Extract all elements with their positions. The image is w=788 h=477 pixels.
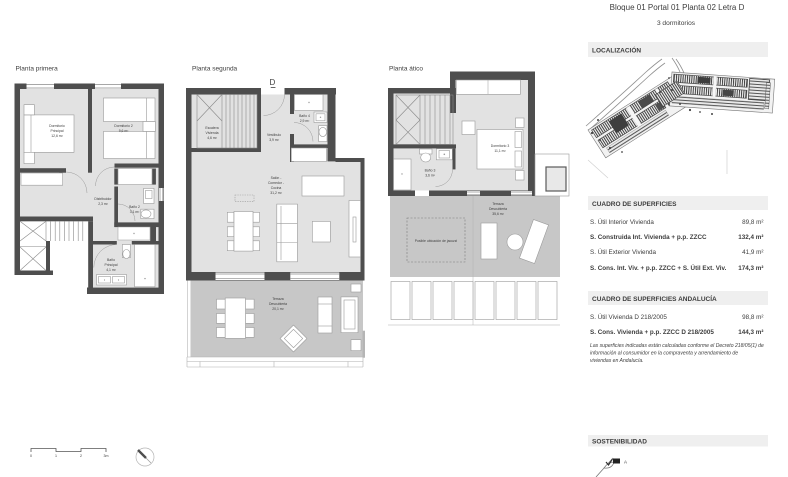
svg-text:20,1 m²: 20,1 m² [272, 307, 284, 311]
svg-text:4,6 m²: 4,6 m² [207, 136, 217, 140]
svg-text:35,6 m²: 35,6 m² [492, 212, 504, 216]
svg-text:2: 2 [80, 454, 82, 458]
svg-text:S. Útil Vivienda D 218/2005: S. Útil Vivienda D 218/2005 [590, 312, 667, 321]
svg-text:Principal: Principal [104, 263, 117, 267]
svg-text:Planta segunda: Planta segunda [192, 66, 238, 73]
svg-text:información al consumidor en l: información al consumidor en la comprave… [590, 351, 738, 357]
svg-text:A: A [624, 460, 627, 465]
svg-text:viviendas en Andalucía.: viviendas en Andalucía. [590, 358, 644, 364]
svg-text:Vestíbulo: Vestíbulo [267, 133, 281, 137]
svg-text:11,1 m²: 11,1 m² [494, 149, 506, 153]
svg-text:89,8 m²: 89,8 m² [742, 219, 763, 226]
svg-text:Dormitorio 3: Dormitorio 3 [491, 144, 510, 148]
svg-text:3,9 m²: 3,9 m² [269, 138, 279, 142]
svg-text:CUADRO DE SUPERFICIES: CUADRO DE SUPERFICIES [592, 201, 677, 208]
svg-text:Baño: Baño [107, 258, 115, 262]
svg-text:Posible ubicación de jacuzzi: Posible ubicación de jacuzzi [415, 239, 458, 243]
svg-text:Salón -: Salón - [271, 176, 282, 180]
svg-text:1: 1 [55, 454, 57, 458]
svg-text:Comedor -: Comedor - [268, 181, 284, 185]
svg-text:3m: 3m [104, 454, 109, 458]
svg-text:LOCALIZACIÓN: LOCALIZACIÓN [592, 46, 641, 55]
svg-text:Vivienda: Vivienda [206, 131, 219, 135]
svg-text:D: D [270, 78, 276, 87]
svg-text:Planta ático: Planta ático [389, 66, 423, 73]
svg-text:Terraza: Terraza [492, 202, 503, 206]
svg-text:132,4 m²: 132,4 m² [738, 234, 763, 241]
svg-text:2,3 m²: 2,3 m² [98, 202, 108, 206]
svg-text:Escalera: Escalera [205, 126, 218, 130]
svg-text:S. Cons. Vivienda + p.p. ZZCC: S. Cons. Vivienda + p.p. ZZCC D 218/2005 [590, 329, 714, 336]
svg-text:Dormitorio 2: Dormitorio 2 [114, 124, 133, 128]
svg-text:3,6 m²: 3,6 m² [425, 174, 435, 178]
svg-text:Dormitorio: Dormitorio [49, 124, 65, 128]
svg-text:2,9 m²: 2,9 m² [300, 119, 310, 123]
svg-text:41,9 m²: 41,9 m² [742, 249, 763, 256]
svg-text:Bloque 01 Portal 01 Planta 02: Bloque 01 Portal 01 Planta 02 Letra D [610, 3, 745, 12]
svg-text:9,6 m²: 9,6 m² [119, 129, 129, 133]
svg-text:Planta primera: Planta primera [16, 66, 59, 73]
svg-text:Baño 4: Baño 4 [299, 114, 310, 118]
svg-text:S. Útil Exterior Vivienda: S. Útil Exterior Vivienda [590, 247, 657, 256]
svg-text:174,3 m²: 174,3 m² [738, 265, 763, 272]
svg-text:Principal: Principal [50, 129, 63, 133]
svg-text:Terraza: Terraza [272, 297, 283, 301]
svg-text:98,8 m²: 98,8 m² [742, 314, 763, 321]
svg-text:Descubierta: Descubierta [489, 207, 507, 211]
svg-text:3 dormitorios: 3 dormitorios [657, 20, 696, 27]
svg-text:12,6 m²: 12,6 m² [51, 134, 63, 138]
svg-text:S. Construida Int. Vivienda +: S. Construida Int. Vivienda + p.p. ZZCC [590, 234, 707, 241]
svg-text:144,3 m²: 144,3 m² [738, 329, 763, 336]
svg-text:0: 0 [30, 454, 32, 458]
svg-text:SOSTENIBILIDAD: SOSTENIBILIDAD [592, 439, 647, 446]
svg-text:CUADRO DE SUPERFICIES ANDALUCÍ: CUADRO DE SUPERFICIES ANDALUCÍA [592, 294, 717, 303]
svg-text:S. Cons. Int. Viv. + p.p. ZZCC: S. Cons. Int. Viv. + p.p. ZZCC + S. Útil… [590, 263, 727, 272]
svg-text:3,1 m²: 3,1 m² [130, 210, 140, 214]
svg-text:S. Útil Interior Vivienda: S. Útil Interior Vivienda [590, 217, 654, 226]
svg-text:31,2 m²: 31,2 m² [270, 191, 282, 195]
svg-text:Baño 2: Baño 2 [129, 205, 140, 209]
svg-text:Las superficies indicadas está: Las superficies indicadas están calculad… [590, 343, 764, 349]
svg-text:Baño 3: Baño 3 [425, 169, 436, 173]
svg-text:Descubierta: Descubierta [269, 302, 287, 306]
svg-text:4,1 m²: 4,1 m² [106, 268, 116, 272]
svg-text:Distribuidor: Distribuidor [94, 197, 112, 201]
svg-text:Cocina: Cocina [271, 186, 282, 190]
